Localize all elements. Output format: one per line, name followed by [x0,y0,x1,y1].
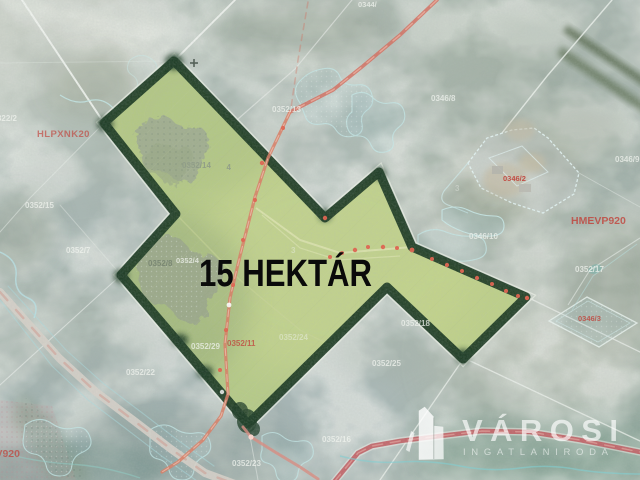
svg-text:15 HEKTÁR: 15 HEKTÁR [199,251,372,295]
